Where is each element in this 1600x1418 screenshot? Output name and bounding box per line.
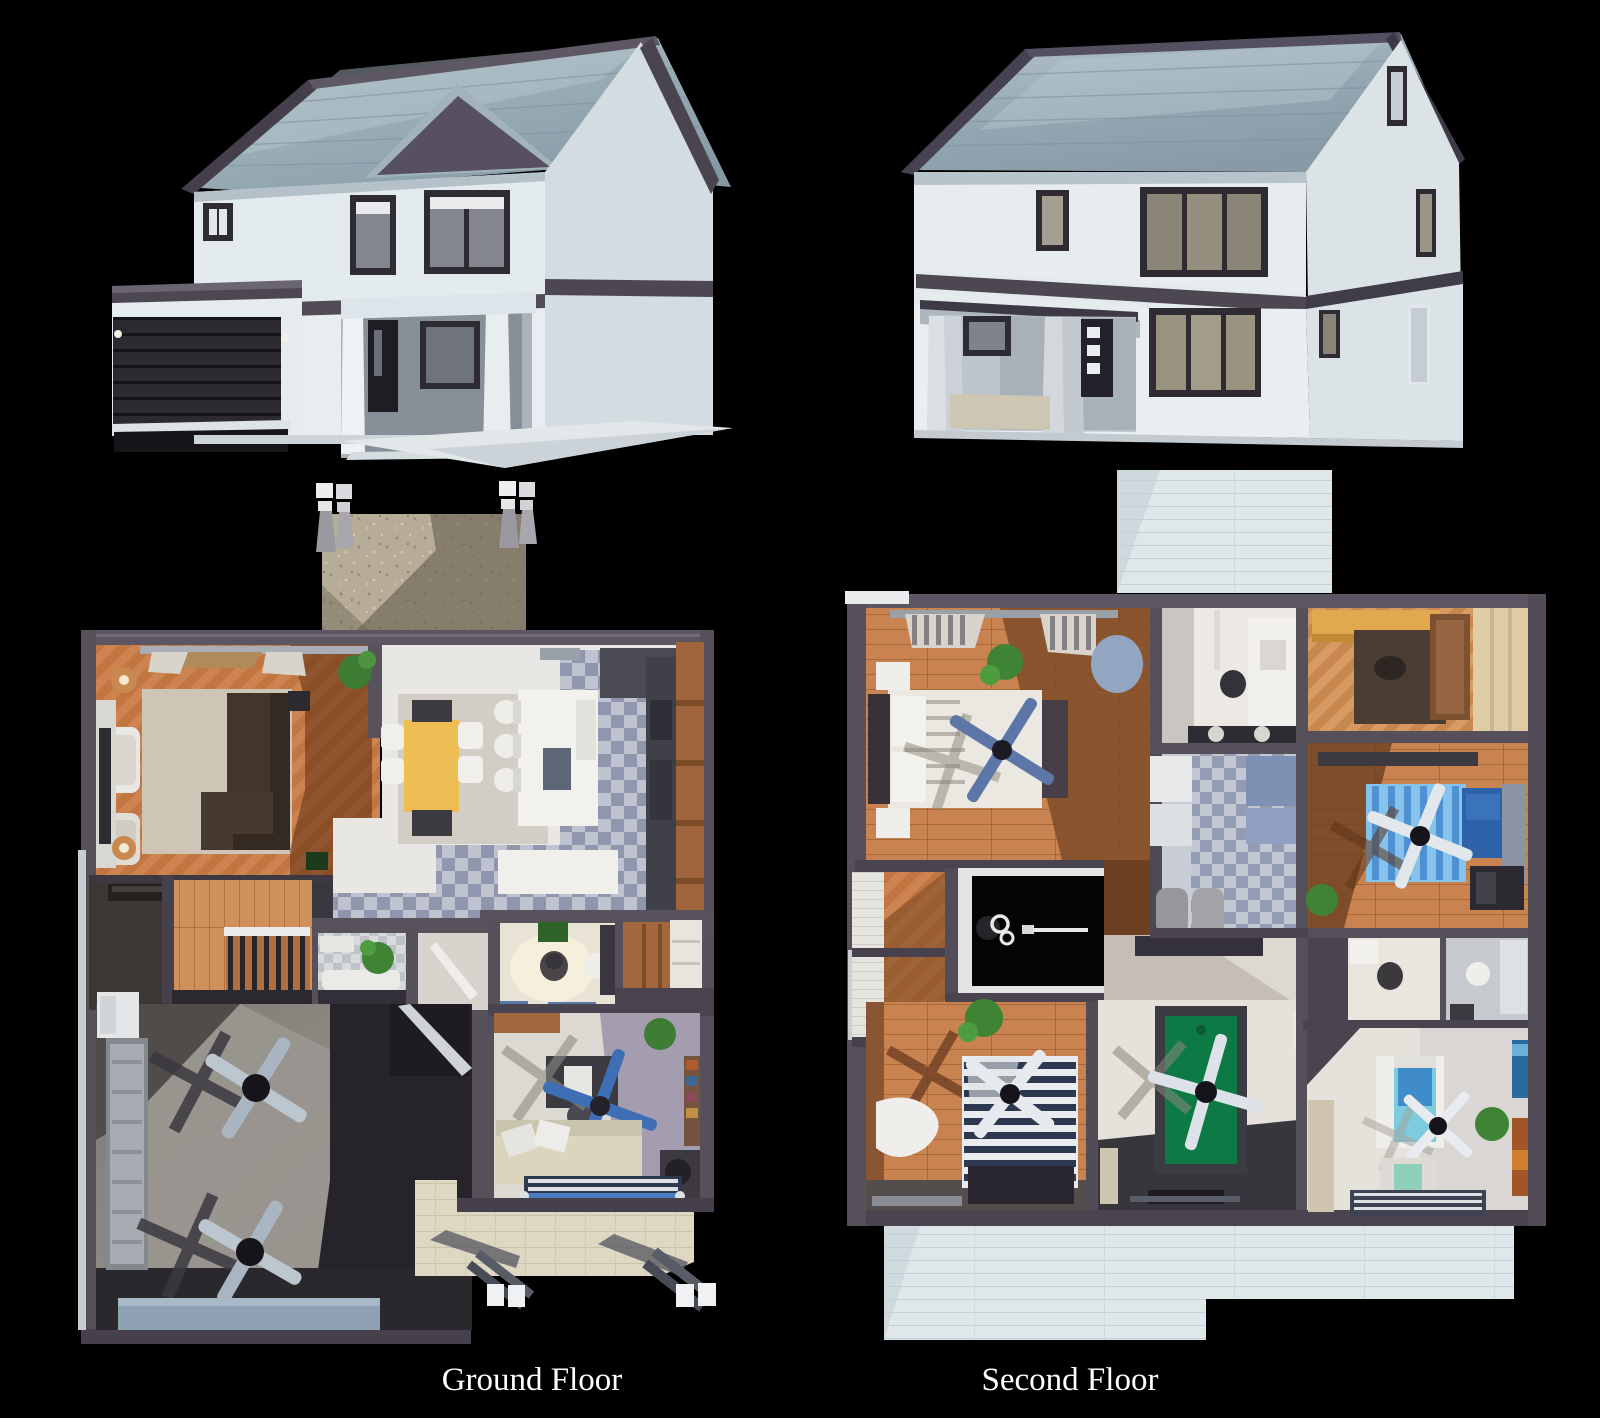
svg-text:Ground Floor: Ground Floor [442,1362,623,1398]
svg-text:Second Floor: Second Floor [982,1362,1159,1398]
